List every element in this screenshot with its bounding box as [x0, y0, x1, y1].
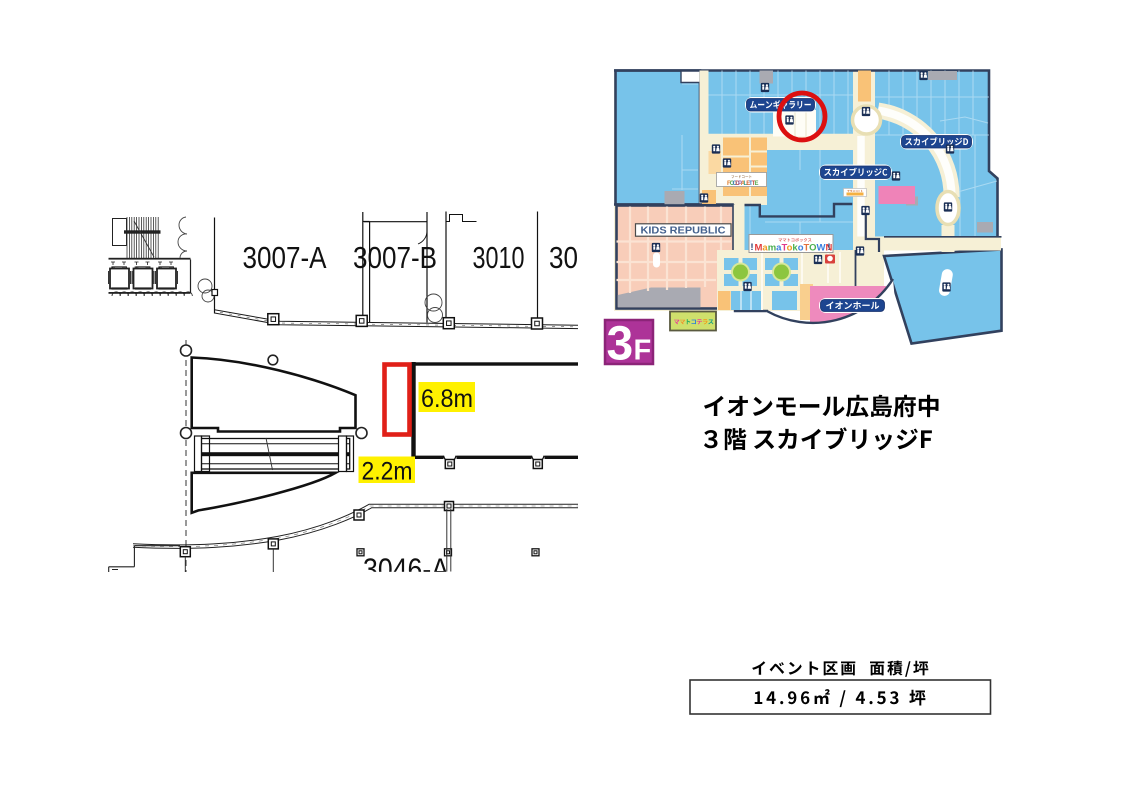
- svg-text:MamaTokoTOWN: MamaTokoTOWN: [755, 243, 833, 254]
- svg-text:3010: 3010: [473, 240, 525, 275]
- svg-text:F: F: [634, 335, 652, 367]
- svg-text:2.2m: 2.2m: [362, 458, 413, 486]
- svg-text:E: E: [755, 181, 759, 187]
- svg-text:!: !: [751, 242, 754, 252]
- svg-text:KIDS REPUBLIC: KIDS REPUBLIC: [641, 226, 726, 237]
- svg-text:30: 30: [549, 240, 578, 275]
- svg-text:3007-B: 3007-B: [353, 240, 437, 275]
- svg-text:3007-A: 3007-A: [243, 240, 327, 275]
- svg-text:!: !: [828, 242, 831, 252]
- svg-text:6.8m: 6.8m: [421, 385, 473, 413]
- svg-text:3: 3: [607, 318, 634, 371]
